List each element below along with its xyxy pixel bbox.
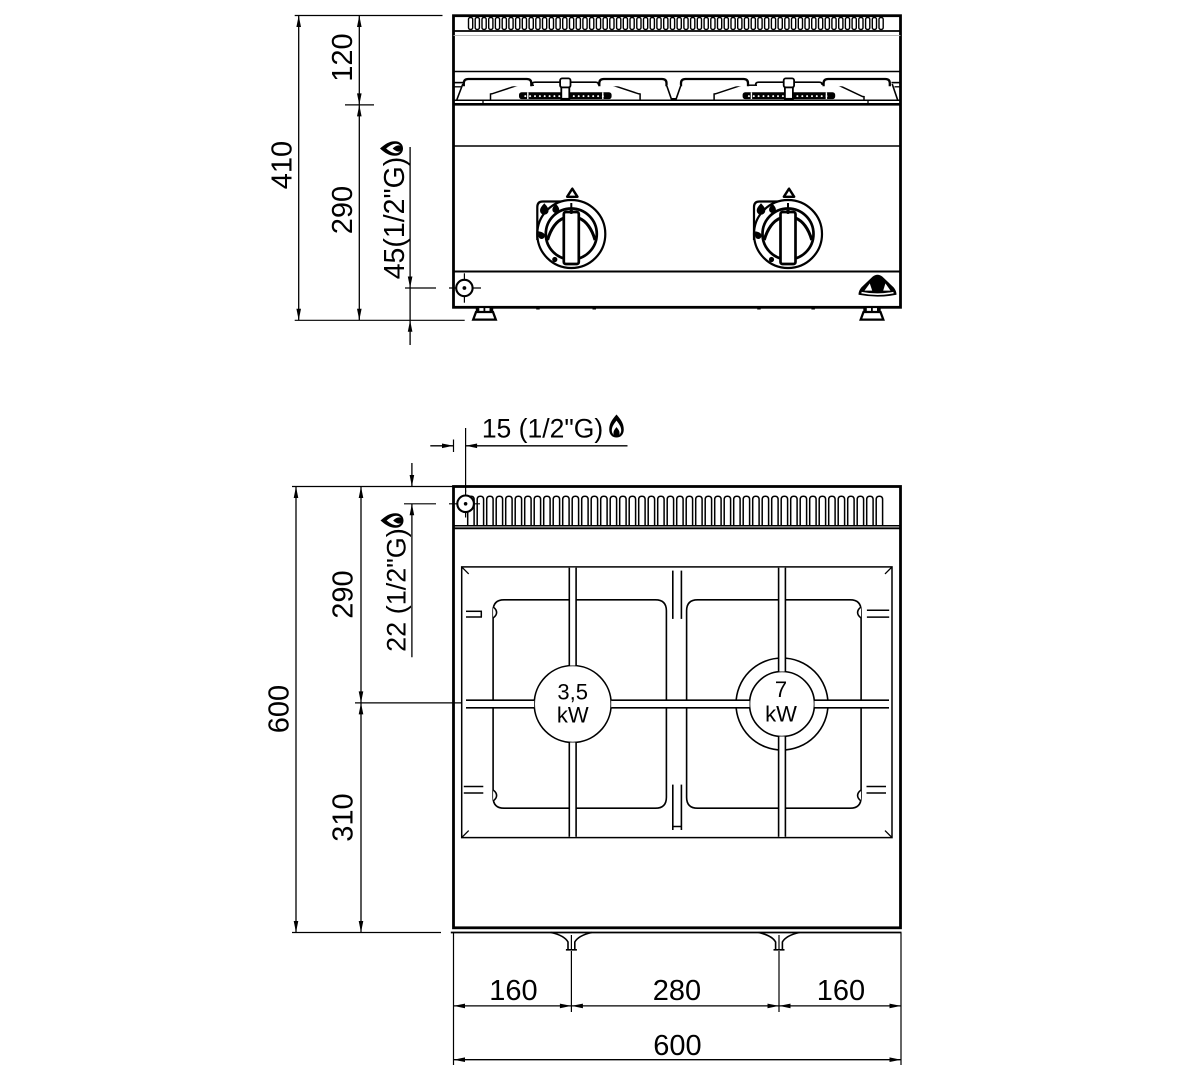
svg-text:kW: kW (557, 702, 589, 727)
svg-text:120: 120 (327, 33, 359, 81)
svg-text:45(1/2"G): 45(1/2"G) (379, 157, 411, 280)
svg-text:600: 600 (653, 1030, 701, 1062)
svg-text:280: 280 (653, 975, 701, 1007)
svg-text:160: 160 (817, 975, 865, 1007)
svg-text:7: 7 (775, 677, 787, 702)
svg-text:15 (1/2"G): 15 (1/2"G) (482, 414, 603, 444)
svg-text:410: 410 (267, 141, 299, 189)
svg-text:290: 290 (328, 570, 360, 618)
svg-text:kW: kW (765, 702, 797, 727)
svg-text:600: 600 (264, 685, 296, 733)
svg-text:160: 160 (489, 975, 537, 1007)
svg-text:22 (1/2"G): 22 (1/2"G) (382, 528, 412, 652)
svg-text:3,5: 3,5 (557, 680, 588, 705)
svg-text:310: 310 (328, 793, 360, 841)
svg-text:290: 290 (327, 186, 359, 234)
